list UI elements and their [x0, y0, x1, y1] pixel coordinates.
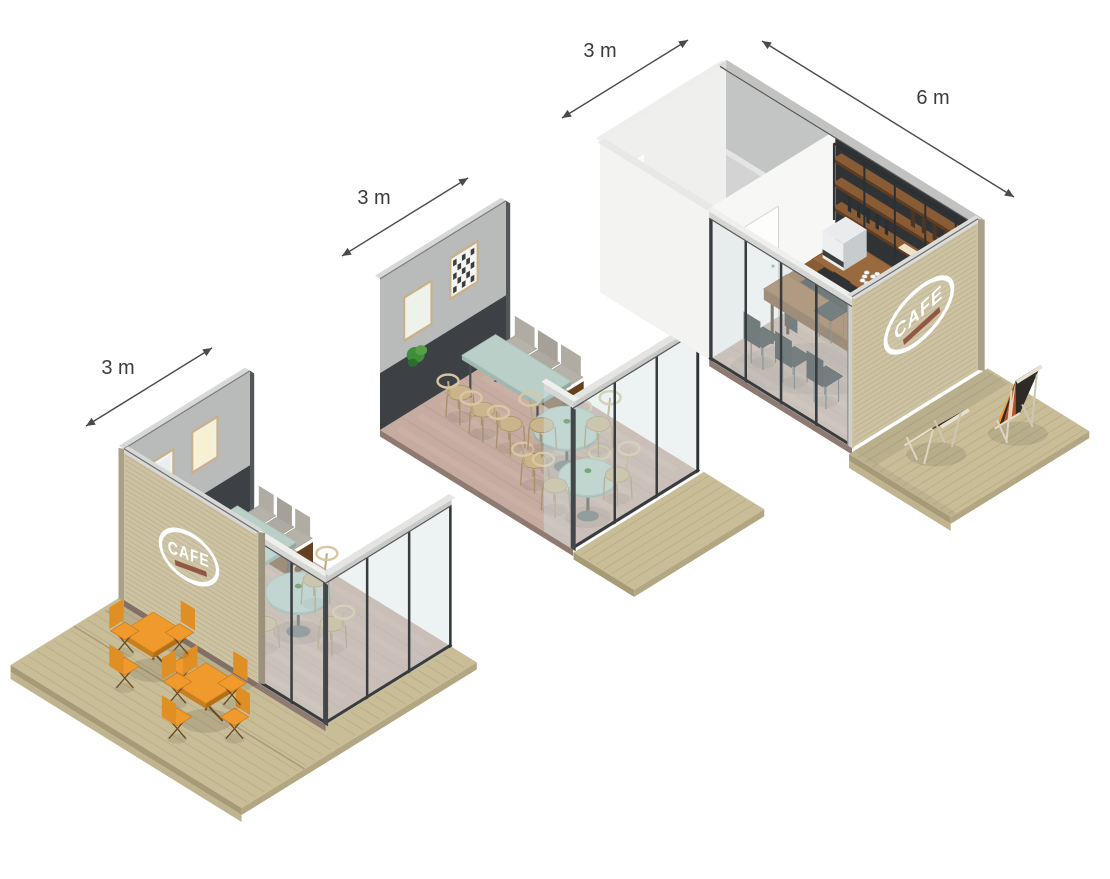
dimension-label-right-unit-width: 3 m [583, 40, 616, 62]
dimension-label-right-unit-length: 6 m [916, 87, 949, 109]
isometric-cafe-render-page: 3 m 3 m 3 m 6 m CAFE CAFE [0, 0, 1110, 879]
dimension-label-middle-unit: 3 m [357, 187, 390, 209]
dimension-label-left-unit: 3 m [101, 357, 134, 379]
three-cafe-units-isometric-scene: 3 m 3 m 3 m 6 m CAFE CAFE [0, 0, 1110, 879]
